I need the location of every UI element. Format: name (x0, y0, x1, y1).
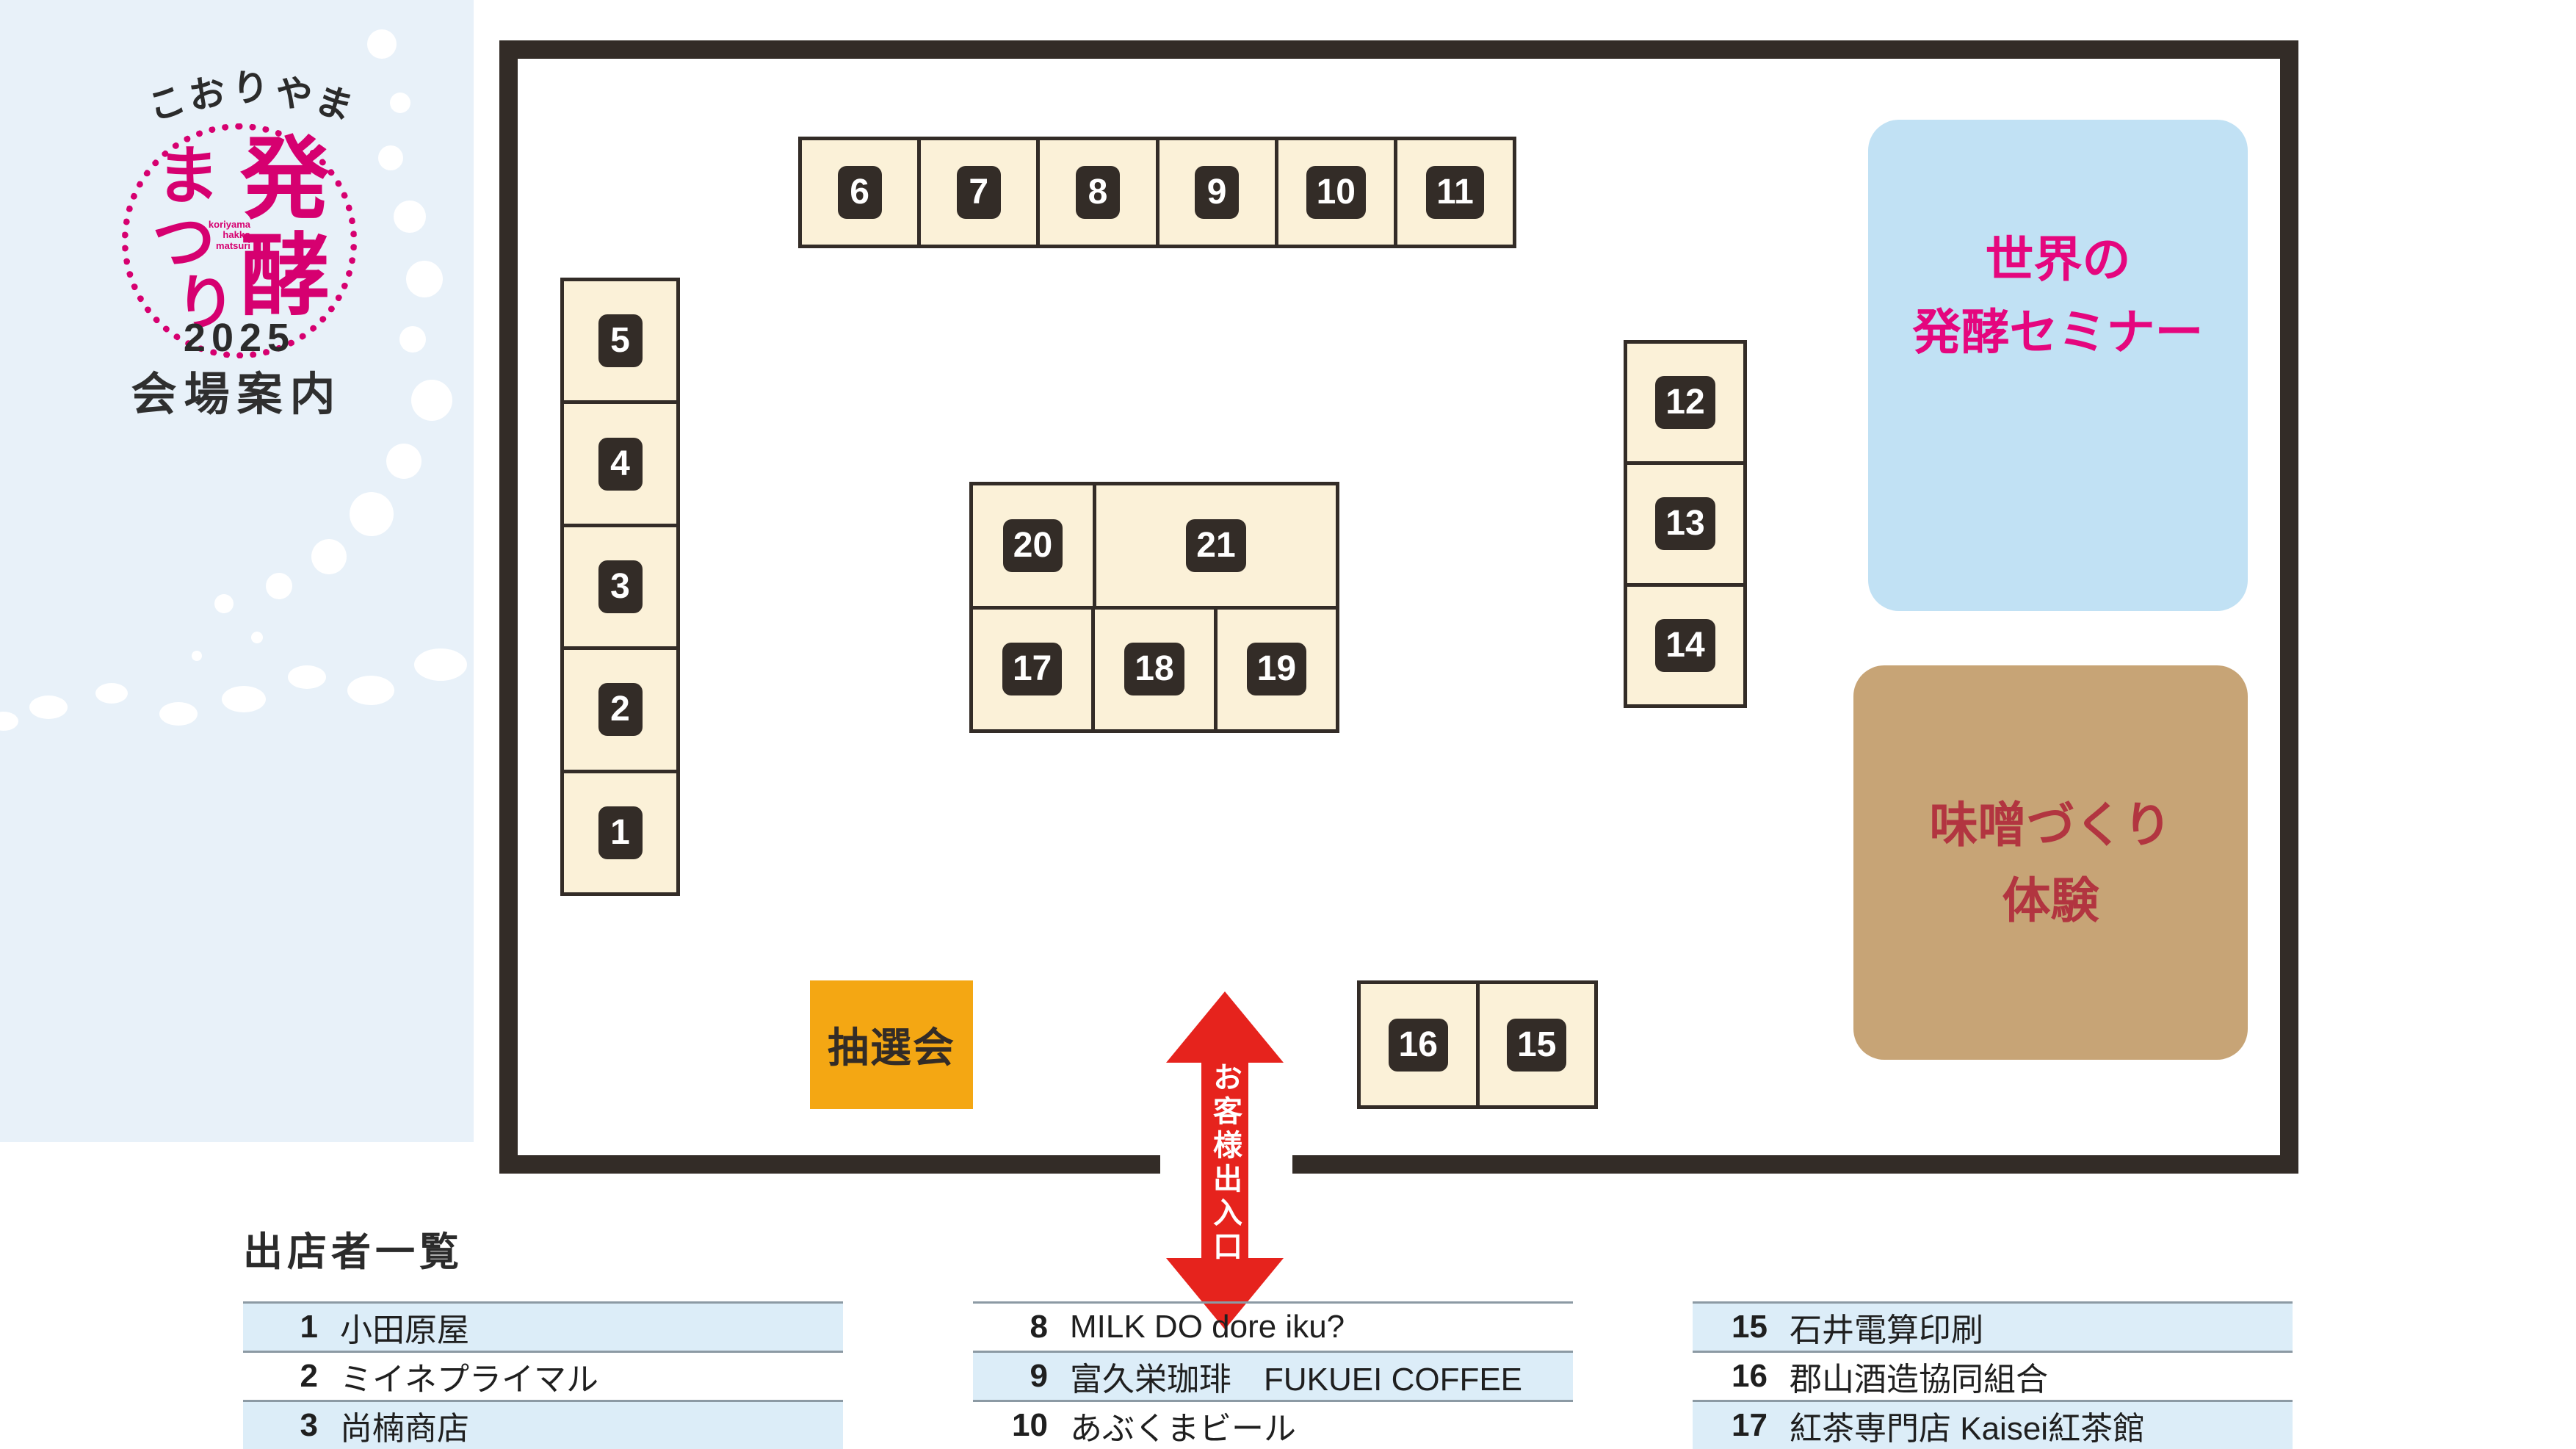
decor-dot (347, 676, 394, 705)
decor-dot (394, 200, 426, 233)
booth-cell-18: 18 (1091, 610, 1213, 730)
booth-cluster-center: 20 21 17 18 19 (969, 482, 1339, 733)
decor-dot (311, 539, 347, 574)
booth-column-right: 12 13 14 (1624, 340, 1747, 708)
booth-badge: 3 (598, 560, 643, 613)
booth-badge: 17 (1002, 643, 1062, 695)
booth-badge: 15 (1507, 1019, 1566, 1072)
booth-cell-4: 4 (564, 400, 676, 523)
booth-badge: 14 (1655, 619, 1715, 672)
booth-cell-5: 5 (564, 281, 676, 400)
decor-dot (390, 93, 410, 113)
booth-badge: 6 (838, 166, 882, 219)
decor-dot (288, 665, 326, 689)
booth-cell-12: 12 (1627, 344, 1743, 461)
booth-badge: 10 (1306, 166, 1366, 219)
booth-cell-9: 9 (1156, 140, 1275, 245)
booth-badge: 11 (1426, 166, 1484, 219)
venue-map-poster: こ お り や ま 発 酵 ま つ り koriyama hakko matsu… (0, 0, 2576, 1449)
vendor-name: 石井電算印刷 (1790, 1304, 1983, 1351)
decor-dot (29, 695, 68, 719)
decor-dot (159, 702, 198, 726)
booth-badge: 8 (1076, 166, 1120, 219)
booth-cluster-top: 20 21 (973, 485, 1336, 606)
logo-subtext: koriyama hakko matsuri (196, 220, 250, 251)
decor-dot (378, 145, 403, 170)
logo-arc-char: ま (309, 70, 361, 131)
venue-guide-title: 会場案内 (0, 357, 474, 423)
booth-column-left: 5 4 3 2 1 (560, 278, 680, 896)
booth-cell-20: 20 (973, 485, 1093, 606)
booth-cell-16: 16 (1361, 984, 1476, 1105)
booth-pair-bottom: 16 15 (1357, 980, 1598, 1109)
seminar-label: 発酵セミナー (1913, 296, 2204, 369)
booth-cell-10: 10 (1275, 140, 1394, 245)
logo-char: 酵 (240, 231, 330, 321)
booth-cell-6: 6 (802, 140, 917, 245)
vendor-row: 10あぶくまビール (973, 1400, 1573, 1449)
vendor-row: 15石井電算印刷 (1693, 1301, 2293, 1351)
booth-cell-13: 13 (1627, 461, 1743, 582)
world-fermentation-seminar-area: 世界の 発酵セミナー (1868, 120, 2248, 611)
vendor-number: 1 (265, 1309, 318, 1345)
vendor-column-1: 1小田原屋 2ミイネプライマル 3尚楠商店 (243, 1301, 843, 1449)
booth-badge: 21 (1186, 519, 1245, 572)
logo-arc-text: こ お り や ま (144, 63, 357, 116)
booth-cluster-bottom: 17 18 19 (973, 606, 1336, 730)
booth-badge: 9 (1195, 166, 1239, 219)
decor-dot (0, 712, 18, 731)
booth-cell-11: 11 (1394, 140, 1513, 245)
lottery-area: 抽選会 (810, 980, 973, 1109)
decor-dot (350, 492, 394, 536)
vendor-row: 8MILK DO dore iku? (973, 1301, 1573, 1351)
vendor-row: 9富久栄珈琲 FUKUEI COFFEE (973, 1351, 1573, 1400)
booth-badge: 7 (957, 166, 1001, 219)
logo-char: ま (156, 145, 220, 208)
miso-label: 体験 (2002, 863, 2099, 938)
logo-arc-char: お (184, 62, 229, 120)
vendor-name: 小田原屋 (340, 1304, 469, 1351)
booth-cell-2: 2 (564, 646, 676, 769)
vendor-number: 16 (1715, 1358, 1768, 1395)
vendor-name: ミイネプライマル (340, 1353, 598, 1400)
vendor-row: 16郡山酒造協同組合 (1693, 1351, 2293, 1400)
entrance-label: お客様出入口 (1204, 1062, 1245, 1265)
vendor-row: 1小田原屋 (243, 1301, 843, 1351)
logo-arc-char: こ (140, 70, 192, 131)
vendor-name: 郡山酒造協同組合 (1790, 1353, 2048, 1400)
vendor-number: 2 (265, 1358, 318, 1395)
booth-cell-14: 14 (1627, 583, 1743, 704)
vendor-row: 17紅茶専門店 Kaisei紅茶館 (1693, 1400, 2293, 1449)
decor-dot (414, 648, 467, 681)
logo-arc-char: や (272, 62, 316, 120)
vendor-name: あぶくまビール (1070, 1402, 1296, 1449)
vendor-number: 8 (995, 1309, 1048, 1345)
vendor-number: 3 (265, 1407, 318, 1444)
booth-cell-3: 3 (564, 524, 676, 646)
miso-label: 味噌づくり (1930, 787, 2172, 862)
decor-dot (251, 632, 263, 643)
booth-badge: 18 (1124, 643, 1184, 695)
logo-year: 2025 (129, 315, 350, 361)
vendor-row: 2ミイネプライマル (243, 1351, 843, 1400)
booth-badge: 19 (1247, 643, 1306, 695)
vendor-column-3: 15石井電算印刷 16郡山酒造協同組合 17紅茶専門店 Kaisei紅茶館 (1693, 1301, 2293, 1449)
vendor-row: 3尚楠商店 (243, 1400, 843, 1449)
vendor-number: 9 (995, 1358, 1048, 1395)
booth-cell-17: 17 (973, 610, 1091, 730)
vendor-number: 15 (1715, 1309, 1768, 1345)
decor-dot (386, 444, 422, 479)
logo-char: 発 (240, 134, 330, 224)
decor-dot (222, 686, 266, 712)
sidebar: こ お り や ま 発 酵 ま つ り koriyama hakko matsu… (0, 0, 474, 1142)
vendor-column-2: 8MILK DO dore iku? 9富久栄珈琲 FUKUEI COFFEE … (973, 1301, 1573, 1449)
logo-arc-char: り (232, 59, 269, 112)
decor-dot (399, 326, 426, 353)
booth-badge: 4 (598, 438, 643, 491)
booth-cell-1: 1 (564, 770, 676, 892)
vendor-list-title: 出店者一覧 (243, 1219, 463, 1277)
booth-badge: 2 (598, 683, 643, 736)
miso-making-experience-area: 味噌づくり 体験 (1853, 665, 2248, 1060)
booth-cell-8: 8 (1036, 140, 1155, 245)
booth-badge: 16 (1389, 1019, 1448, 1072)
booth-row-top: 6 7 8 9 10 11 (798, 137, 1516, 248)
decor-dot (214, 594, 234, 613)
booth-badge: 13 (1655, 497, 1715, 550)
lottery-label: 抽選会 (828, 1015, 955, 1074)
decor-dot (406, 261, 443, 297)
booth-cell-19: 19 (1214, 610, 1336, 730)
decor-dot (266, 573, 292, 599)
booth-badge: 5 (598, 314, 643, 367)
decor-dot (95, 683, 128, 704)
booth-cell-21: 21 (1093, 485, 1336, 606)
festival-logo: 発 酵 ま つ り koriyama hakko matsuri 2025 (122, 123, 357, 358)
decor-dot (192, 651, 202, 661)
vendor-name: MILK DO dore iku? (1070, 1309, 1345, 1345)
booth-cell-7: 7 (917, 140, 1036, 245)
vendor-name: 富久栄珈琲 FUKUEI COFFEE (1070, 1353, 1522, 1400)
vendor-name: 紅茶専門店 Kaisei紅茶館 (1790, 1402, 2145, 1449)
decor-dot (367, 29, 397, 59)
booth-badge: 1 (598, 806, 643, 859)
vendor-name: 尚楠商店 (340, 1402, 469, 1449)
booth-badge: 12 (1655, 376, 1715, 429)
vendor-number: 17 (1715, 1407, 1768, 1444)
booth-cell-15: 15 (1476, 984, 1595, 1105)
seminar-label: 世界の (1986, 223, 2131, 296)
booth-badge: 20 (1003, 519, 1063, 572)
vendor-number: 10 (995, 1407, 1048, 1444)
